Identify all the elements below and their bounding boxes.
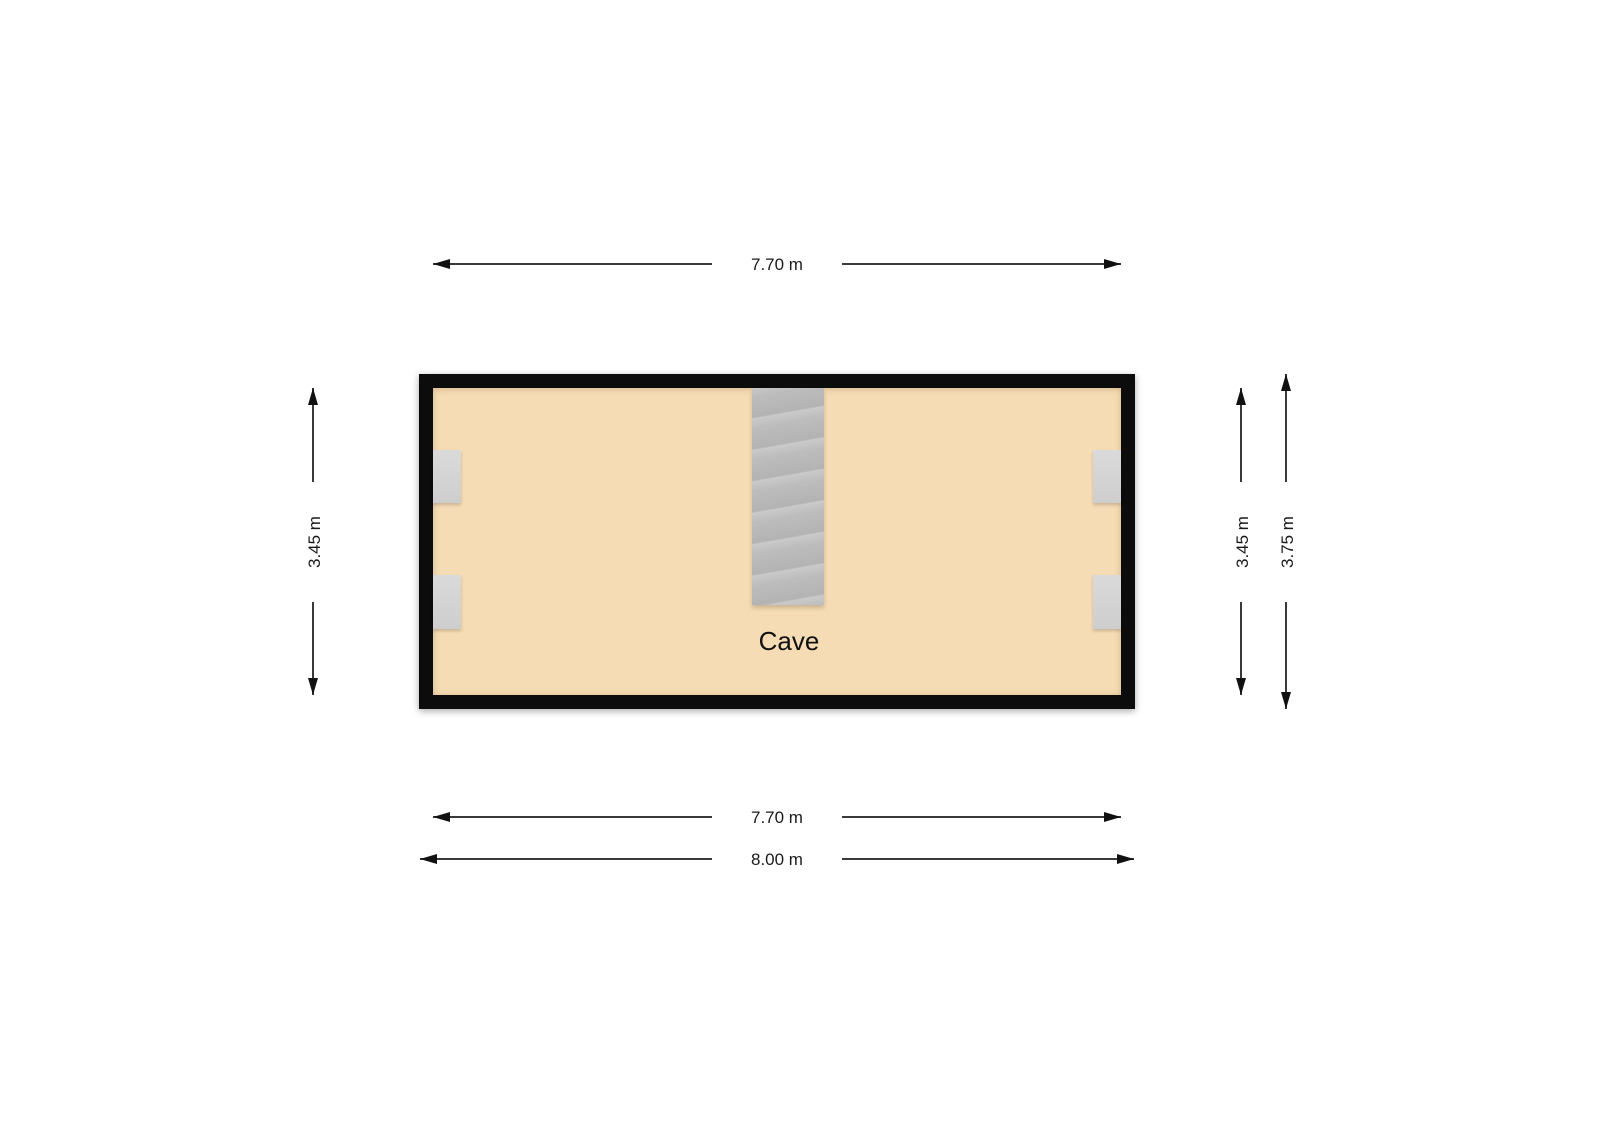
dimension-top-width-label: 7.70 m <box>712 255 842 275</box>
dimension-right-outer-height-label: 3.75 m <box>1278 482 1298 602</box>
staircase <box>752 388 824 605</box>
window-left-bottom <box>433 575 461 629</box>
dimension-left-height: 3.45 m <box>312 388 314 695</box>
dimension-right-outer-height: 3.75 m <box>1285 374 1287 709</box>
window-left-top <box>433 450 461 503</box>
room-walls: Cave <box>419 374 1135 709</box>
dimension-right-inner-height: 3.45 m <box>1240 388 1242 695</box>
floor-plan: Cave 7.70 m 7.70 m 8.00 m 3.45 m 3.45 m … <box>0 0 1600 1132</box>
dimension-bottom-inner-width: 7.70 m <box>433 816 1121 818</box>
room-cave-floor: Cave <box>433 388 1121 695</box>
room-label: Cave <box>689 626 889 656</box>
dimension-right-inner-height-label: 3.45 m <box>1233 482 1253 602</box>
dimension-bottom-outer-width-label: 8.00 m <box>712 850 842 870</box>
dimension-bottom-outer-width: 8.00 m <box>420 858 1134 860</box>
dimension-left-height-label: 3.45 m <box>305 482 325 602</box>
dimension-top-width: 7.70 m <box>433 263 1121 265</box>
dimension-bottom-inner-width-label: 7.70 m <box>712 808 842 828</box>
window-right-top <box>1093 450 1121 503</box>
window-right-bottom <box>1093 575 1121 629</box>
